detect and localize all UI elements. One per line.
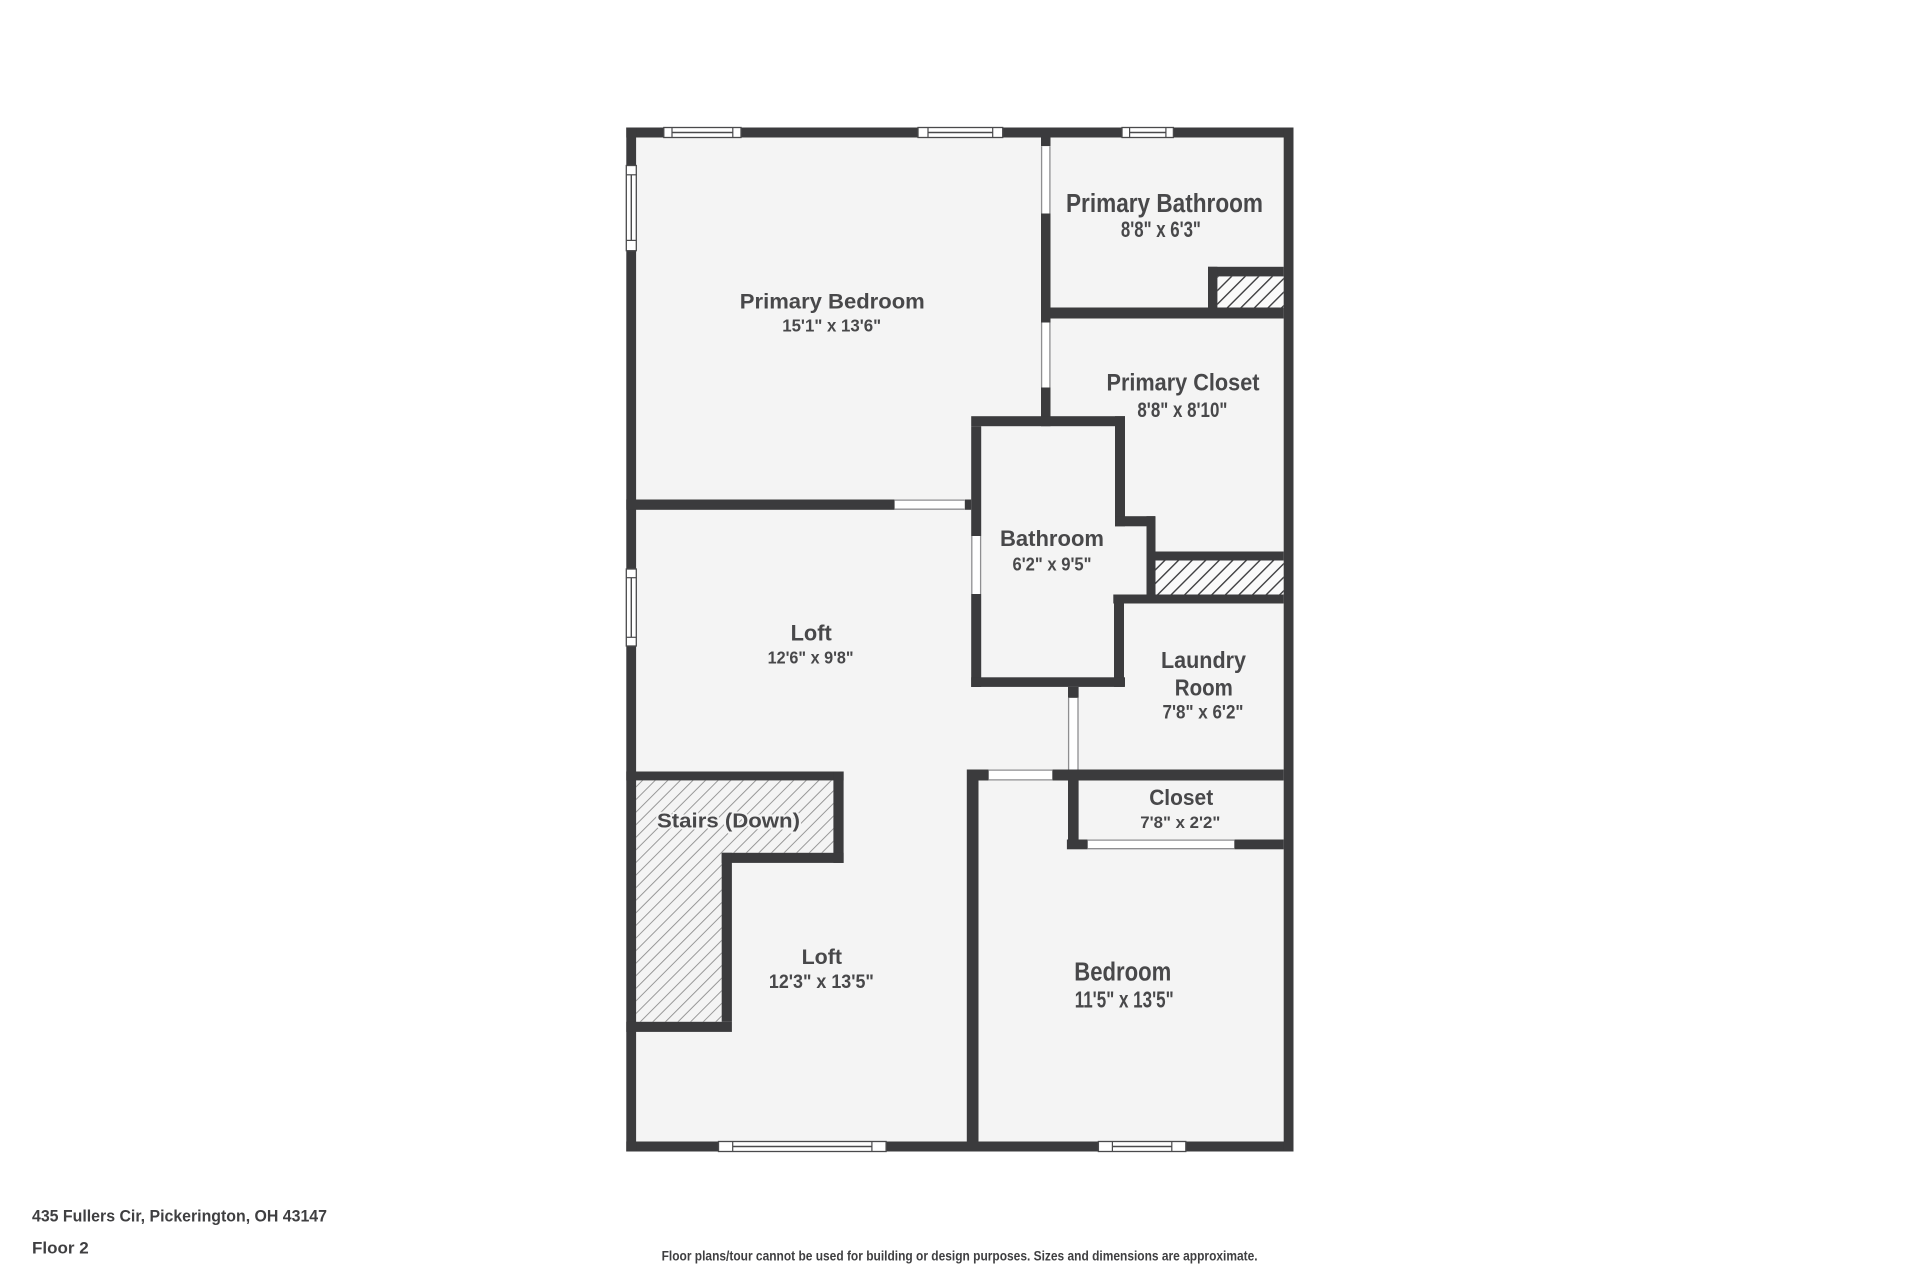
svg-text:Closet: Closet xyxy=(1149,785,1214,810)
svg-text:15'1" x 13'6": 15'1" x 13'6" xyxy=(782,316,881,336)
svg-text:11'5" x 13'5": 11'5" x 13'5" xyxy=(1075,986,1174,1012)
svg-text:Bedroom: Bedroom xyxy=(1074,959,1171,987)
svg-text:7'8" x 2'2": 7'8" x 2'2" xyxy=(1140,814,1220,832)
svg-text:Floor plans/tour cannot be use: Floor plans/tour cannot be used for buil… xyxy=(662,1247,1258,1263)
svg-text:435 Fullers Cir, Pickerington,: 435 Fullers Cir, Pickerington, OH 43147 xyxy=(32,1207,327,1226)
svg-text:Primary Bathroom: Primary Bathroom xyxy=(1066,188,1263,218)
svg-text:12'6" x 9'8": 12'6" x 9'8" xyxy=(768,648,854,668)
svg-text:Stairs (Down): Stairs (Down) xyxy=(657,810,800,833)
svg-text:8'8" x 6'3": 8'8" x 6'3" xyxy=(1121,217,1201,242)
svg-text:12'3" x 13'5": 12'3" x 13'5" xyxy=(769,972,874,993)
svg-text:Laundry: Laundry xyxy=(1161,647,1246,673)
svg-text:Floor 2: Floor 2 xyxy=(32,1239,89,1258)
svg-text:Loft: Loft xyxy=(791,621,832,646)
svg-text:8'8" x 8'10": 8'8" x 8'10" xyxy=(1137,399,1227,422)
svg-text:7'8" x 6'2": 7'8" x 6'2" xyxy=(1163,701,1244,723)
svg-text:Room: Room xyxy=(1175,674,1233,700)
svg-text:Primary Bedroom: Primary Bedroom xyxy=(740,288,925,313)
svg-text:Bathroom: Bathroom xyxy=(1000,526,1104,551)
svg-text:6'2" x 9'5": 6'2" x 9'5" xyxy=(1013,553,1092,574)
svg-text:Loft: Loft xyxy=(802,945,842,969)
svg-text:Primary Closet: Primary Closet xyxy=(1107,371,1260,397)
